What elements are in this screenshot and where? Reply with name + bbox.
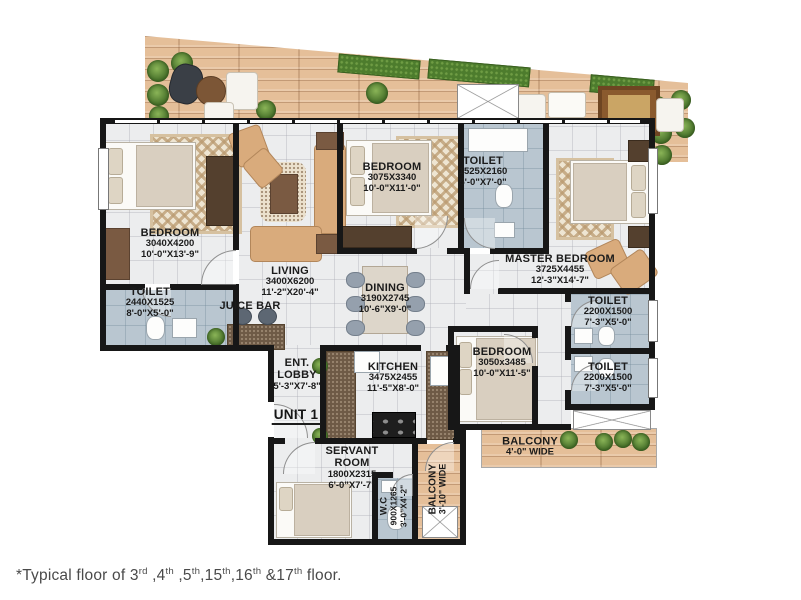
room-width: 4'-0" WIDE (502, 448, 558, 459)
wall (453, 438, 460, 444)
label-toilet-top: TOILET 1525X2160 5'-0"X7'-0" (459, 155, 508, 189)
balcony-window (573, 410, 651, 430)
wall (565, 390, 571, 404)
floor-plan: BEDROOM 3040X4200 10'-0"X13'-9" TOILET 2… (0, 0, 801, 600)
bed-pillow (459, 342, 472, 368)
wash-basin (172, 318, 197, 338)
room-dim-imperial: 5'-3"X7'-8" (271, 382, 323, 393)
wall (268, 438, 285, 444)
room-dim-imperial: 12'-3"X14'-7" (505, 276, 615, 287)
wall (233, 118, 239, 250)
plant (147, 60, 169, 82)
bed-blanket (294, 484, 350, 536)
plant (256, 100, 276, 120)
bed-pillow (108, 148, 123, 175)
room-name: ENT. LOBBY (271, 357, 323, 382)
wall (315, 438, 427, 444)
wall (565, 348, 655, 354)
label-toilet-right-lower: TOILET 2200X1500 7'-3"X5'-0" (584, 361, 633, 395)
label-bedroom-top: BEDROOM 3075X3340 10'-0"X11'-0" (363, 161, 422, 195)
wall (565, 288, 571, 302)
room-dim-imperial: 5'-0"X7'-0" (459, 178, 508, 189)
dining-chair (406, 320, 425, 336)
wall (448, 424, 571, 430)
plant (147, 84, 169, 106)
kitchen-counter (326, 351, 356, 440)
wall (337, 248, 417, 254)
room-dim-metric: 1800X2315 (314, 470, 390, 481)
label-toilet-right-upper: TOILET 2200X1500 7'-3"X5'-0" (584, 295, 633, 329)
plant (614, 430, 632, 448)
room-dim-imperial: 10'-0"X11'-0" (363, 184, 422, 195)
wall (337, 118, 343, 254)
room-width: 3'-10" WIDE (439, 464, 449, 515)
wall (543, 118, 549, 254)
plant (366, 82, 388, 104)
bed-pillow (631, 192, 646, 218)
wardrobe (342, 226, 412, 248)
label-juice-bar: JUICE BAR (219, 300, 280, 312)
wall (100, 345, 239, 351)
label-balcony-bottom: BALCONY 3'-10" WIDE (428, 464, 449, 515)
room-dim-imperial: 7'-3"X5'-0" (584, 318, 633, 329)
terrace-bench (548, 92, 586, 118)
wall (326, 345, 421, 351)
wc-pan (598, 326, 615, 346)
label-dining: DINING 3190X2745 10'-6"X9'-0" (359, 282, 412, 316)
label-toilet-left: TOILET 2440X1525 8'-0"X5'-0" (126, 286, 175, 320)
bed-blanket (136, 145, 193, 207)
window (648, 300, 658, 342)
dining-chair (346, 320, 365, 336)
bed-pillow (459, 369, 472, 395)
room-dim-imperial: 11'-5"X8'-0" (367, 384, 419, 395)
room-name: SERVANT ROOM (314, 445, 390, 470)
plant (207, 328, 225, 346)
wall (498, 288, 655, 294)
wall (268, 539, 466, 545)
room-name: JUICE BAR (219, 300, 280, 312)
label-wc: W.C 900X1265 3'-0"X4'-2" (379, 485, 408, 527)
room-dim-imperial: 3'-0"X4'-2" (399, 485, 408, 527)
wardrobe (206, 156, 234, 226)
wash-basin (574, 328, 593, 344)
label-kitchen: KITCHEN 3475X2455 11'-5"X8'-0" (367, 361, 419, 395)
dresser (104, 228, 130, 280)
service-shaft (457, 84, 519, 119)
label-ent-lobby: ENT. LOBBY 5'-3"X7'-8" (271, 357, 323, 393)
window-glazing (112, 120, 640, 123)
wall (454, 345, 460, 438)
window (648, 358, 658, 398)
wall (268, 437, 274, 545)
wall (448, 326, 538, 332)
wardrobe (628, 226, 651, 248)
bathtub (468, 128, 528, 152)
wall (532, 326, 538, 338)
plant (560, 431, 578, 449)
window (648, 148, 658, 214)
room-dim-imperial: 10'-6"X9'-0" (359, 305, 412, 316)
room-dim-imperial: 8'-0"X5'-0" (126, 309, 175, 320)
wall (532, 366, 538, 430)
wall (565, 326, 571, 360)
room-dim-imperial: 10'-0"X13'-9" (141, 250, 200, 261)
terrace-chair (656, 98, 684, 132)
bed-pillow (631, 165, 646, 191)
label-bedroom-right: BEDROOM 3050x3485 10'-0"X11'-5" (473, 346, 532, 380)
sofa (250, 226, 322, 262)
bed-pillow (279, 487, 293, 511)
label-living: LIVING 3400X6200 11'-2"X20'-4" (261, 265, 318, 299)
wash-basin (494, 222, 515, 238)
room-dim-imperial: 10'-0"X11'-5" (473, 369, 532, 380)
label-balcony-right: BALCONY 4'-0" WIDE (502, 435, 558, 458)
footnote: *Typical floor of 3rd ,4th ,5th,15th,16t… (16, 566, 342, 585)
bed-blanket (573, 163, 627, 221)
cooktop-hob (372, 412, 416, 438)
unit-label: UNIT 1 (272, 407, 321, 425)
room-dim-imperial: 7'-3"X5'-0" (584, 384, 633, 395)
wall (460, 424, 466, 545)
wall (233, 284, 239, 351)
window (98, 148, 109, 210)
label-master-bedroom: MASTER BEDROOM 3725X4455 12'-3"X14'-7" (505, 253, 615, 287)
wall (233, 345, 274, 351)
plant (595, 433, 613, 451)
label-bedroom-left: BEDROOM 3040X4200 10'-0"X13'-9" (141, 227, 200, 261)
bed-pillow (108, 177, 123, 204)
side-table (316, 234, 338, 254)
plant (632, 433, 650, 451)
room-dim-imperial: 11'-2"X20'-4" (261, 288, 318, 299)
coffee-table (270, 174, 298, 214)
